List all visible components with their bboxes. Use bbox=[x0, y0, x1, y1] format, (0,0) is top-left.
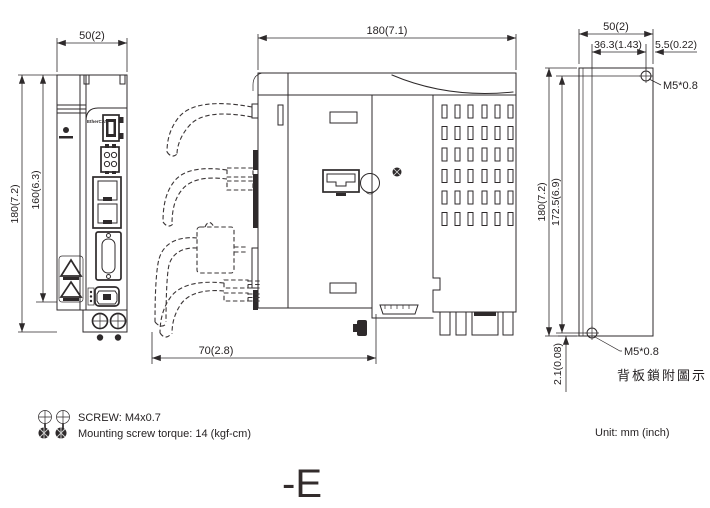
bottom-plate bbox=[57, 310, 127, 341]
cable-pair-lower bbox=[160, 280, 262, 337]
dim-side-depth: 180(7.1) bbox=[367, 25, 408, 37]
knob bbox=[361, 174, 380, 193]
dim-back-height-outer: 180(7.2) bbox=[536, 182, 548, 221]
front-edge-connectors bbox=[252, 104, 258, 310]
dim-cable-clearance: 70(2.8) bbox=[199, 345, 234, 357]
usb-port bbox=[88, 287, 119, 306]
display-module: EtherCAT bbox=[87, 115, 124, 141]
side-view bbox=[252, 73, 516, 336]
cable-large-connector bbox=[155, 223, 248, 327]
back-view bbox=[579, 68, 653, 340]
cable-top bbox=[167, 104, 252, 156]
dimension-drawing-sheet: EtherCAT bbox=[0, 0, 710, 508]
model-suffix: -E bbox=[282, 462, 322, 506]
label-screw-top: M5*0.8 bbox=[663, 80, 698, 92]
side-view-dimensions: 180(7.1) 70(2.8) bbox=[152, 25, 516, 364]
vent-slots bbox=[442, 105, 513, 226]
mounting-feet bbox=[440, 312, 513, 335]
label-plate bbox=[330, 283, 356, 293]
note-torque-spec: Mounting screw torque: 14 (kgf-cm) bbox=[78, 428, 251, 440]
caution-triangle-icon bbox=[61, 282, 81, 297]
dim-back-width: 50(2) bbox=[603, 21, 629, 33]
front-view: EtherCAT bbox=[57, 75, 127, 341]
dim-hole-offset-h: 36.3(1.43) bbox=[594, 39, 642, 51]
label-plate bbox=[330, 112, 357, 123]
torque-screw-icon bbox=[39, 428, 67, 439]
warning-labels bbox=[59, 256, 83, 302]
dim-front-height-inner: 160(6.3) bbox=[30, 170, 42, 209]
back-plate-caption: 背板鎖附圖示 bbox=[617, 368, 707, 383]
dim-front-width: 50(2) bbox=[79, 30, 105, 42]
cable-routing bbox=[155, 104, 262, 337]
dimension-drawing: EtherCAT bbox=[0, 0, 710, 508]
notes: SCREW: M4x0.7 Mounting screw torque: 14 … bbox=[39, 411, 670, 441]
status-led bbox=[63, 127, 69, 133]
dim-edge-offset: 5.5(0.22) bbox=[655, 39, 697, 51]
screw-head-icon bbox=[39, 411, 70, 430]
dim-hole-span-v: 172.5(6.9) bbox=[550, 178, 562, 226]
bottom-dsub bbox=[353, 305, 433, 336]
io-connector bbox=[96, 232, 121, 280]
note-screw-spec: SCREW: M4x0.7 bbox=[78, 412, 161, 424]
dim-bottom-offset: 2.1(0.08) bbox=[552, 343, 564, 385]
label-screw-bottom: M5*0.8 bbox=[624, 346, 659, 358]
rj45-ports bbox=[93, 177, 121, 228]
brand-logo-text: EtherCAT bbox=[87, 119, 108, 124]
heatsink-section bbox=[433, 95, 516, 335]
screw-hole-top bbox=[639, 69, 653, 83]
heatsink-fins bbox=[57, 105, 86, 113]
side-connector bbox=[323, 170, 359, 196]
cable-pair-upper bbox=[163, 168, 253, 226]
note-unit: Unit: mm (inch) bbox=[595, 427, 670, 439]
power-connector bbox=[101, 144, 119, 174]
warning-triangle-icon bbox=[61, 260, 81, 276]
dim-front-height-outer: 180(7.2) bbox=[9, 184, 21, 223]
